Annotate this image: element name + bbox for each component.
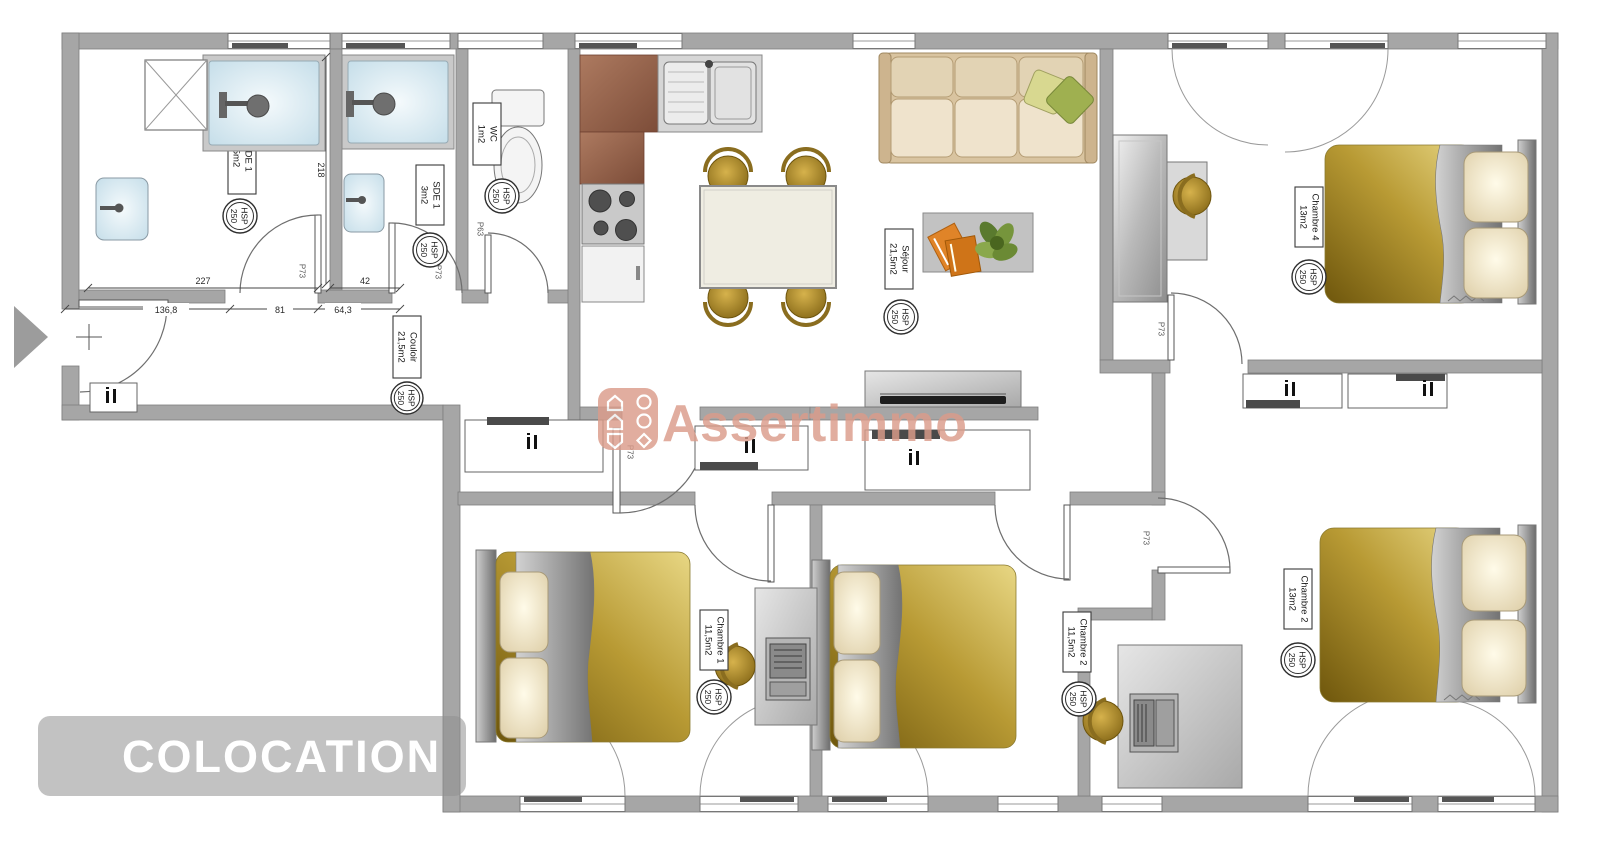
hsp-value: 250	[703, 690, 713, 704]
room-name: Chambre 2	[1078, 619, 1089, 666]
window	[228, 34, 330, 49]
kitchen-counter-icon	[580, 55, 660, 184]
assertimmo-logo-icon	[598, 388, 658, 450]
hsp-value: 250	[396, 391, 406, 405]
window	[998, 797, 1058, 812]
window	[520, 797, 625, 812]
hsp-label: HSP	[240, 207, 250, 225]
hsp-badge: HSP 250	[223, 199, 257, 233]
door-code: P63	[476, 222, 485, 237]
hsp-label: HSP	[407, 389, 417, 407]
room-label-wc: WC 1m2	[473, 103, 501, 165]
room-name: Chambre 1	[715, 617, 726, 664]
hsp-value: 250	[1287, 653, 1297, 667]
room-label-bath-right: SDE 1 3m2	[416, 165, 444, 225]
room-area: 13m2	[1287, 587, 1298, 611]
bed-icon	[1320, 525, 1536, 703]
window	[1285, 34, 1388, 49]
hsp-value: 250	[1298, 270, 1308, 284]
bed-icon	[1325, 140, 1536, 304]
floor-plan-page: SDE 1 5m2	[0, 0, 1620, 860]
laptop-icon	[766, 638, 810, 700]
stove-icon	[582, 184, 644, 244]
room-area: 13m2	[1298, 205, 1309, 229]
hsp-badge: HSP 250	[413, 233, 447, 267]
wc-door	[485, 233, 548, 293]
dimension-label: 218	[316, 162, 326, 177]
room-name: SDE 1	[431, 181, 442, 208]
room-name: Séjour	[900, 245, 911, 272]
watermark-brand: Assertimmo	[662, 395, 968, 453]
sofa-icon	[879, 53, 1097, 163]
window	[700, 797, 798, 812]
hsp-label: HSP	[502, 187, 512, 205]
window	[458, 34, 543, 49]
window	[1308, 797, 1412, 812]
room-label-bedroom2: Chambre 2 11,5m2	[1063, 612, 1091, 672]
hsp-badge: HSP 250	[884, 300, 918, 334]
dining-table-icon	[700, 186, 836, 288]
banner: COLOCATION	[38, 716, 466, 796]
room-area: 11,5m2	[703, 625, 714, 656]
banner-title: COLOCATION	[122, 731, 441, 782]
bedroom4-door	[1168, 293, 1242, 364]
dimension-label: 136,8	[155, 305, 178, 315]
room-name: WC	[488, 126, 499, 142]
room-label-bedroom-bottom-right: Chambre 2 13m2	[1284, 569, 1312, 629]
dimension-label: 42	[360, 276, 370, 286]
room-area: 21,5m2	[888, 243, 899, 275]
room-label-couloir: Couloir 21,5m2	[393, 316, 421, 378]
desk-icon	[1118, 645, 1242, 788]
door-code: P73	[434, 265, 443, 280]
hsp-label: HSP	[1079, 690, 1089, 708]
hsp-value: 250	[419, 243, 429, 257]
closet-icon	[465, 417, 603, 472]
shower-icon	[342, 55, 454, 149]
room-name: Chambre 4	[1310, 194, 1321, 241]
washing-machine-icon	[145, 60, 207, 130]
hsp-badge: HSP 250	[1292, 260, 1326, 294]
hsp-badge: HSP 250	[391, 382, 423, 414]
window	[1458, 34, 1546, 49]
closet-icon	[1243, 374, 1342, 408]
dimension-label: 81	[275, 305, 285, 315]
door-code: P73	[1157, 322, 1166, 337]
room-area: 5m2	[231, 149, 242, 167]
door-code: P73	[1142, 531, 1151, 546]
window	[1168, 34, 1268, 49]
bedroom1-door	[695, 505, 774, 582]
room-area: 21,5m2	[396, 331, 407, 363]
hsp-label: HSP	[901, 308, 911, 326]
kitchen-sink-icon	[658, 55, 762, 132]
entrance-arrow-icon	[14, 306, 48, 368]
hsp-value: 250	[491, 189, 501, 203]
hsp-badge: HSP 250	[1281, 643, 1315, 677]
laptop-icon	[1130, 694, 1178, 752]
hsp-label: HSP	[1298, 651, 1308, 669]
kitchen-cabinet-icon	[582, 246, 644, 302]
coffee-table-icon	[923, 213, 1033, 276]
window	[1102, 797, 1162, 812]
hsp-badge: HSP 250	[1062, 682, 1096, 716]
sink-icon	[344, 174, 384, 232]
room-area: 3m2	[419, 186, 430, 204]
hsp-badge: HSP 250	[697, 680, 731, 714]
desk-icon	[755, 588, 817, 725]
floor-plan: SDE 1 5m2	[0, 0, 1620, 860]
room-area: 1m2	[476, 125, 487, 143]
room-label-bedroom1: Chambre 1 11,5m2	[700, 610, 728, 670]
window	[853, 34, 915, 49]
room-name: Chambre 2	[1299, 576, 1310, 623]
hsp-label: HSP	[430, 241, 440, 259]
shower-icon	[203, 55, 325, 151]
window	[1438, 797, 1535, 812]
wardrobe-icon	[1113, 135, 1167, 302]
window	[342, 34, 450, 49]
hsp-label: HSP	[714, 688, 724, 706]
dimension-label: 227	[195, 276, 210, 286]
bed-icon	[812, 560, 1016, 750]
room-area: 11,5m2	[1066, 627, 1077, 658]
door-code: P73	[298, 264, 307, 279]
bed-icon	[476, 550, 690, 742]
radiator-icon	[90, 383, 137, 412]
hsp-badge: HSP 250	[485, 179, 519, 213]
room-label-sejour: Séjour 21,5m2	[885, 229, 913, 289]
room-name: Couloir	[408, 332, 419, 362]
bedroom-right-door	[1158, 498, 1230, 573]
window	[575, 34, 682, 49]
hsp-label: HSP	[1309, 268, 1319, 286]
hsp-value: 250	[1068, 692, 1078, 706]
window	[828, 797, 928, 812]
watermark: Assertimmo	[598, 388, 968, 453]
sink-icon	[96, 178, 148, 240]
hsp-value: 250	[229, 209, 239, 223]
room-label-bedroom4: Chambre 4 13m2	[1295, 187, 1323, 247]
closet-icon	[1348, 374, 1447, 408]
hsp-value: 250	[890, 310, 900, 324]
dimension-label: 64,3	[334, 305, 352, 315]
